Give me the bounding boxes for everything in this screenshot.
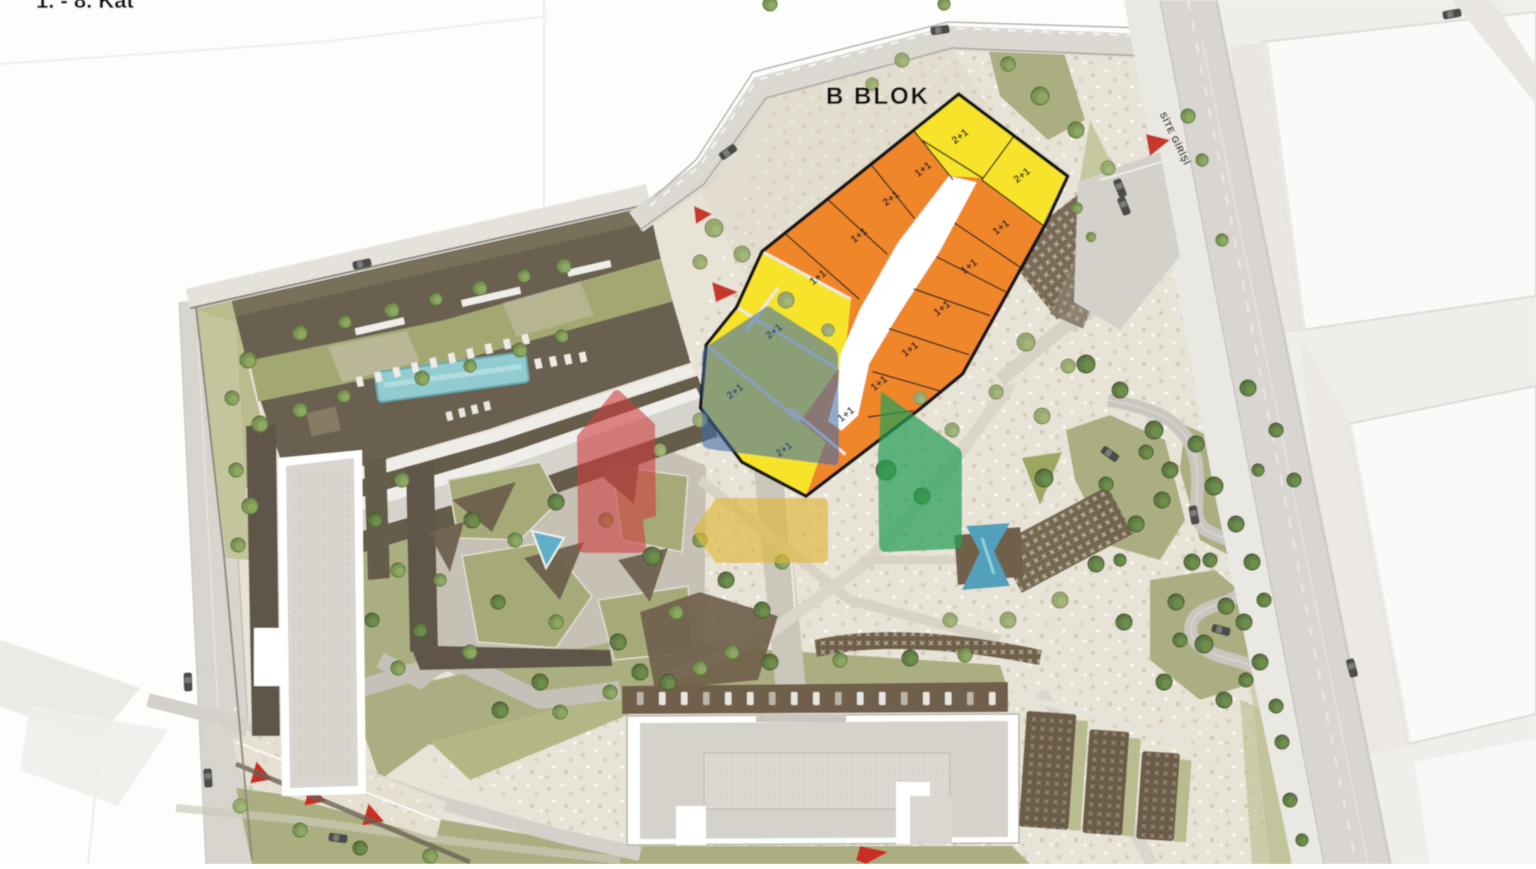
- svg-text:B BLOK: B BLOK: [826, 83, 930, 110]
- svg-text:1. - 8. Kat: 1. - 8. Kat: [36, 0, 134, 13]
